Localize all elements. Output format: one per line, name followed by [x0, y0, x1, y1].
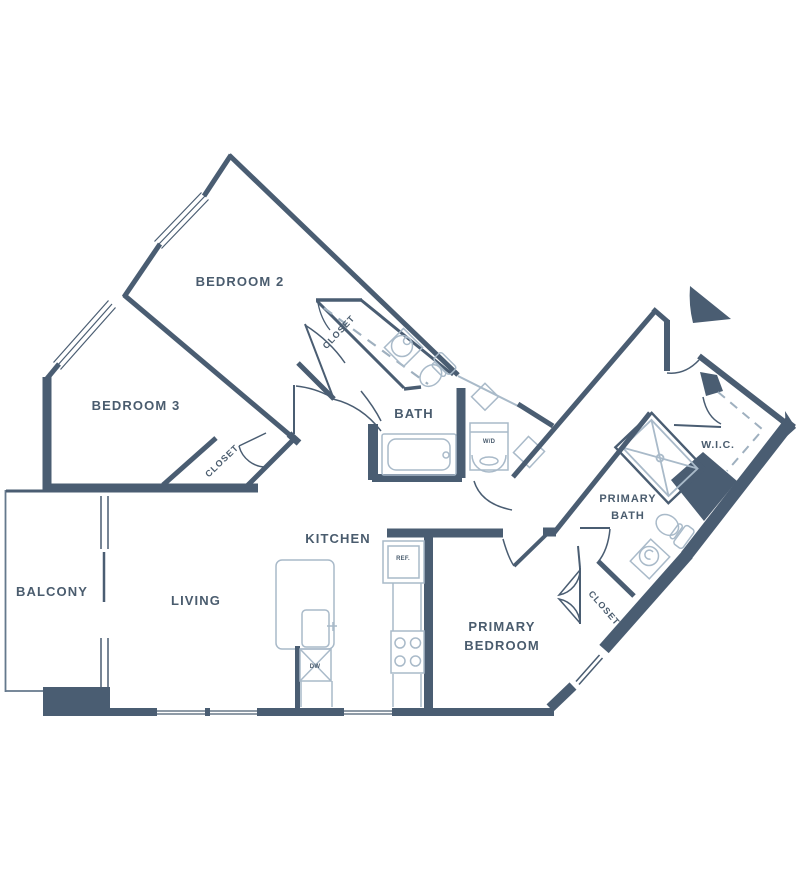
svg-text:BEDROOM: BEDROOM	[464, 638, 540, 653]
svg-text:BEDROOM 3: BEDROOM 3	[92, 398, 181, 413]
svg-text:REF.: REF.	[396, 556, 410, 562]
svg-text:DW: DW	[310, 664, 321, 670]
svg-text:PRIMARY: PRIMARY	[468, 619, 535, 634]
svg-text:CLOSET: CLOSET	[587, 589, 622, 628]
svg-text:BATH: BATH	[394, 406, 434, 421]
svg-text:W/D: W/D	[483, 439, 496, 445]
svg-text:BALCONY: BALCONY	[16, 584, 88, 599]
svg-text:BATH: BATH	[611, 510, 645, 522]
svg-text:BEDROOM 2: BEDROOM 2	[196, 274, 285, 289]
svg-text:KITCHEN: KITCHEN	[305, 531, 370, 546]
svg-text:W.I.C.: W.I.C.	[701, 439, 734, 451]
svg-text:CLOSET: CLOSET	[203, 442, 241, 479]
svg-text:LIVING: LIVING	[171, 593, 221, 608]
svg-text:PRIMARY: PRIMARY	[599, 493, 656, 505]
